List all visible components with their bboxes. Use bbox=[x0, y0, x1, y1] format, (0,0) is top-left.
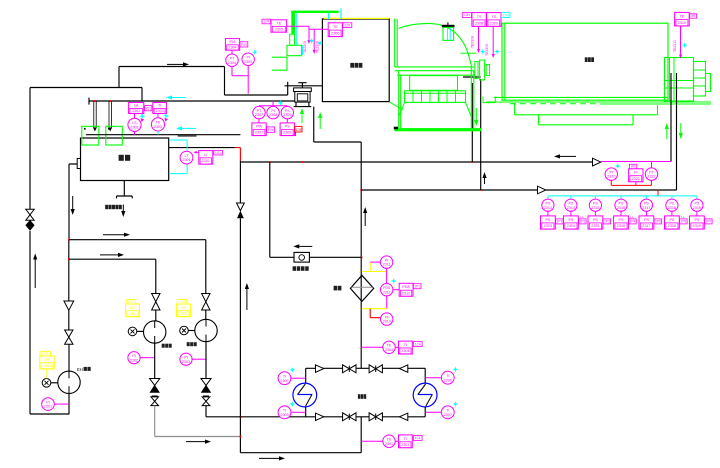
svg-text:2315: 2315 bbox=[591, 206, 599, 210]
svg-text:1P1: 1P1 bbox=[557, 220, 563, 224]
svg-text:2302: 2302 bbox=[129, 312, 137, 316]
svg-text:2317: 2317 bbox=[642, 206, 650, 210]
svg-text:V01: V01 bbox=[145, 107, 151, 111]
svg-text:2308: 2308 bbox=[269, 113, 277, 117]
svg-text:TE2308: TE2308 bbox=[470, 36, 474, 48]
svg-text:2304: 2304 bbox=[385, 348, 393, 352]
svg-text:2307: 2307 bbox=[255, 131, 263, 135]
svg-text:HS: HS bbox=[45, 358, 51, 362]
svg-text:1C1: 1C1 bbox=[415, 436, 421, 440]
svg-text:PI: PI bbox=[634, 171, 637, 175]
svg-text:2307: 2307 bbox=[444, 413, 452, 417]
svg-text:LI: LI bbox=[204, 153, 207, 157]
svg-text:PS: PS bbox=[669, 218, 674, 222]
svg-text:PS: PS bbox=[545, 218, 550, 222]
svg-text:2302: 2302 bbox=[280, 379, 288, 383]
svg-text:13H: 13H bbox=[464, 13, 471, 17]
svg-text:PIA: PIA bbox=[256, 125, 262, 129]
svg-text:2302: 2302 bbox=[130, 358, 138, 362]
svg-text:TE2310: TE2310 bbox=[673, 40, 677, 52]
svg-text:2303: 2303 bbox=[155, 109, 163, 113]
svg-text:2312: 2312 bbox=[402, 291, 410, 295]
svg-text:1P4: 1P4 bbox=[630, 220, 636, 224]
svg-text:LCS: LCS bbox=[42, 352, 48, 356]
svg-text:P04: P04 bbox=[268, 128, 274, 132]
svg-text:1P6: 1P6 bbox=[681, 220, 687, 224]
svg-text:2321: 2321 bbox=[632, 177, 640, 181]
svg-text:1P5: 1P5 bbox=[655, 220, 661, 224]
svg-text:TI: TI bbox=[158, 104, 161, 108]
svg-text:PS: PS bbox=[593, 218, 598, 222]
svg-text:2317: 2317 bbox=[642, 224, 650, 228]
svg-text:2309: 2309 bbox=[283, 113, 291, 117]
svg-text:12H: 12H bbox=[344, 23, 351, 27]
svg-text:HS: HS bbox=[181, 306, 187, 310]
svg-text:LL: LL bbox=[580, 215, 584, 219]
svg-text:2310: 2310 bbox=[678, 21, 686, 25]
svg-text:2303: 2303 bbox=[180, 312, 188, 316]
svg-text:TE2305: TE2305 bbox=[303, 41, 307, 53]
svg-text:2322: 2322 bbox=[647, 175, 655, 179]
svg-text:2315: 2315 bbox=[591, 224, 599, 228]
svg-text:2311: 2311 bbox=[383, 263, 391, 267]
svg-text:P03: P03 bbox=[241, 43, 247, 47]
svg-text:1P7: 1P7 bbox=[706, 220, 712, 224]
svg-text:1P3: 1P3 bbox=[604, 220, 610, 224]
svg-text:2305: 2305 bbox=[275, 27, 283, 31]
svg-text:SOE: SOE bbox=[295, 128, 302, 132]
svg-text:2301: 2301 bbox=[202, 159, 210, 163]
svg-text:1C4: 1C4 bbox=[415, 342, 421, 346]
svg-text:2301: 2301 bbox=[385, 442, 393, 446]
svg-text:2319: 2319 bbox=[693, 224, 701, 228]
svg-text:TS: TS bbox=[491, 15, 496, 19]
svg-text:2304: 2304 bbox=[228, 61, 236, 65]
svg-text:TE: TE bbox=[276, 22, 281, 26]
svg-text:LL: LL bbox=[631, 215, 635, 219]
svg-text:2320: 2320 bbox=[607, 175, 615, 179]
svg-text:2313: 2313 bbox=[544, 224, 552, 228]
svg-text:TS: TS bbox=[477, 15, 482, 19]
svg-text:12H: 12H bbox=[263, 20, 270, 24]
svg-text:TE: TE bbox=[680, 15, 685, 19]
svg-text:2313: 2313 bbox=[544, 206, 552, 210]
svg-text:2302: 2302 bbox=[132, 109, 140, 113]
svg-text:LL: LL bbox=[681, 215, 685, 219]
svg-text:TI: TI bbox=[404, 437, 407, 441]
svg-text:2308: 2308 bbox=[475, 21, 483, 25]
svg-text:L01: L01 bbox=[216, 151, 222, 155]
svg-text:2303: 2303 bbox=[154, 125, 162, 129]
svg-text:17H: 17H bbox=[503, 13, 510, 17]
svg-text:PS: PS bbox=[619, 218, 624, 222]
svg-text:1P1: 1P1 bbox=[414, 285, 420, 289]
svg-text:TE2309: TE2309 bbox=[485, 44, 489, 56]
svg-text:2318: 2318 bbox=[668, 224, 676, 228]
svg-text:2306: 2306 bbox=[331, 32, 339, 36]
svg-text:2314: 2314 bbox=[567, 224, 575, 228]
svg-text:2316: 2316 bbox=[617, 224, 625, 228]
svg-text:2309: 2309 bbox=[490, 21, 498, 25]
svg-text:2314: 2314 bbox=[567, 206, 575, 210]
svg-text:2303: 2303 bbox=[182, 360, 190, 364]
svg-text:2304: 2304 bbox=[228, 45, 236, 49]
svg-text:PIA: PIA bbox=[230, 40, 236, 44]
svg-text:2318: 2318 bbox=[668, 206, 676, 210]
svg-text:2302: 2302 bbox=[130, 125, 138, 129]
svg-text:2301: 2301 bbox=[401, 443, 409, 447]
svg-text:TE: TE bbox=[333, 25, 338, 29]
svg-text:2303: 2303 bbox=[280, 413, 288, 417]
svg-text:AS: AS bbox=[631, 165, 635, 169]
svg-text:LA: LA bbox=[134, 104, 139, 108]
svg-text:2301: 2301 bbox=[43, 364, 51, 368]
svg-text:2304: 2304 bbox=[401, 349, 409, 353]
svg-text:LCS: LCS bbox=[179, 300, 185, 304]
svg-text:HS: HS bbox=[130, 306, 136, 310]
svg-text:2316: 2316 bbox=[617, 206, 625, 210]
svg-text:2305: 2305 bbox=[244, 60, 252, 64]
svg-text:LCS: LCS bbox=[128, 300, 134, 304]
svg-text:2301: 2301 bbox=[44, 405, 52, 409]
svg-text:EH: EH bbox=[77, 367, 83, 372]
svg-text:2310: 2310 bbox=[383, 320, 391, 324]
svg-text:PS: PS bbox=[644, 218, 649, 222]
svg-text:2319: 2319 bbox=[693, 206, 701, 210]
svg-text:PDA: PDA bbox=[402, 285, 410, 289]
svg-text:1P2: 1P2 bbox=[580, 220, 586, 224]
svg-text:2312: 2312 bbox=[383, 290, 391, 294]
svg-text:2301: 2301 bbox=[182, 158, 190, 162]
svg-text:PS: PS bbox=[694, 218, 699, 222]
svg-text:2307: 2307 bbox=[255, 113, 263, 117]
svg-text:2309: 2309 bbox=[283, 131, 291, 135]
svg-text:TI: TI bbox=[404, 343, 407, 347]
svg-text:9H: 9H bbox=[691, 14, 696, 18]
svg-text:2306: 2306 bbox=[444, 378, 452, 382]
svg-text:PS: PS bbox=[285, 125, 290, 129]
svg-text:PS: PS bbox=[568, 218, 573, 222]
